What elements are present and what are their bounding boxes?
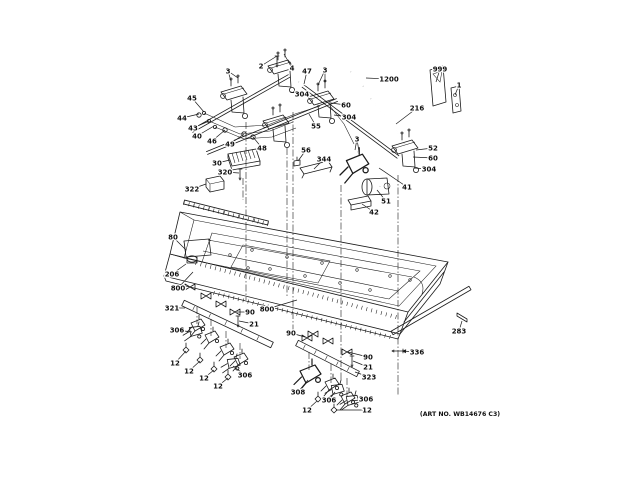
flange-tick [361, 306, 362, 310]
callout-label: 52 [428, 145, 438, 153]
gas-valve [187, 315, 205, 337]
bar-slot [303, 345, 305, 349]
callout-label: 2 [259, 63, 264, 71]
callout-label: 43 [188, 125, 198, 133]
floor-hole [251, 249, 254, 252]
flange-tick [356, 305, 357, 309]
art-number: (ART NO. WB14676 C3) [420, 411, 500, 418]
flange-tick [386, 312, 387, 316]
flange-tick [254, 277, 255, 281]
plate-1 [451, 86, 461, 113]
holder-306 [182, 319, 205, 345]
flange-tick [235, 272, 236, 276]
callout-label: 55 [311, 123, 321, 131]
callout-label: 4 [290, 65, 295, 73]
callout-label: 336 [410, 349, 425, 357]
callout-label: 90 [245, 309, 255, 317]
floor-hole [247, 267, 250, 270]
flange-tick [308, 291, 309, 295]
bar-slot [257, 336, 259, 340]
callout-label: 306 [322, 397, 337, 405]
callout-label: 12 [362, 407, 372, 415]
flange-tick [244, 274, 245, 278]
callout-label: 344 [317, 156, 332, 164]
bar-slot [325, 356, 327, 360]
flange-tick [352, 303, 353, 307]
floor-hole [269, 268, 272, 271]
callout-label: 999 [433, 66, 448, 74]
callout-label: 60 [341, 102, 351, 110]
orifice-12 [225, 370, 231, 380]
clip-800 [185, 284, 195, 290]
callout-label: 306 [170, 327, 185, 335]
flange-tick [313, 293, 314, 297]
floor-hole [304, 275, 307, 278]
callout-label: 44 [177, 115, 187, 123]
callout-label: 306 [359, 396, 374, 404]
flange-tick [342, 301, 343, 305]
bracket-344 [300, 161, 332, 178]
flange-tick [269, 281, 270, 285]
valve-assembly-a [221, 75, 248, 119]
callout-label: 3 [355, 136, 360, 144]
box-right-face [400, 262, 448, 334]
bar-slot [239, 215, 240, 218]
callout-label: 12 [213, 383, 223, 391]
flange-tick [327, 297, 328, 301]
igniter-wire-2 [209, 121, 293, 134]
clip [323, 338, 333, 344]
flange-tick [200, 262, 201, 266]
orifice-12 [331, 403, 337, 413]
flange-tick [366, 307, 367, 311]
callout-label: 21 [249, 321, 259, 329]
flange-tick [395, 315, 396, 319]
clip-800 [216, 301, 226, 307]
flange-tick [239, 273, 240, 277]
flange-tick [381, 311, 382, 315]
flex-hose-216-core [371, 99, 404, 143]
callout-label: 90 [286, 330, 296, 338]
flange-tick [220, 268, 221, 272]
callout-label: 308 [291, 389, 306, 397]
callout-label: 323 [362, 374, 377, 382]
callout-label: 46 [207, 138, 217, 146]
box-floor [202, 233, 420, 299]
callout-label: 49 [225, 141, 235, 149]
box-corner-cutout [414, 277, 423, 294]
diagram-page: 3244734530460443044340464948555634430320… [0, 0, 640, 480]
callout-label: 800 [171, 285, 186, 293]
callout-label: 80 [168, 234, 178, 242]
callout-label: 1 [457, 82, 462, 90]
flange-tick [205, 264, 206, 268]
callout-label: 12 [184, 368, 194, 376]
valve-f [340, 148, 369, 183]
floor-hole [389, 275, 392, 278]
valve-308 [294, 359, 321, 392]
callout-label: 21 [363, 364, 373, 372]
floor-hole [321, 262, 324, 265]
callout-label: 320 [218, 169, 233, 177]
rear-support-rail [184, 200, 269, 225]
callout-label: 45 [187, 95, 197, 103]
callout-label: 321 [165, 305, 180, 313]
bar-slot [254, 218, 255, 221]
flange-tick [376, 310, 377, 314]
floor-hole [229, 254, 232, 257]
callout-label: 12 [170, 360, 180, 368]
flange-tick [230, 270, 231, 274]
flange-tick [210, 265, 211, 269]
wire-terminal [197, 113, 201, 117]
callout-label: 90 [363, 354, 373, 362]
callout-label: 322 [185, 186, 200, 194]
flange-tick [264, 280, 265, 284]
callout-label: 12 [302, 407, 312, 415]
callout-label: 1200 [379, 76, 399, 84]
bar-slot [241, 329, 243, 333]
clip-90 [342, 349, 352, 355]
bar-slot [347, 367, 349, 371]
flange-tick [259, 278, 260, 282]
flange-tick [288, 286, 289, 290]
callout-label: 30 [212, 160, 222, 168]
callout-label: 47 [302, 68, 312, 76]
flange-tick [332, 298, 333, 302]
callout-label: 306 [238, 372, 253, 380]
generated-parts-layer [182, 49, 471, 414]
flange-tick [225, 269, 226, 273]
callout-layer: 3244734530460443044340464948555634430320… [165, 54, 467, 415]
bar-slot [193, 306, 195, 310]
supply-pipe-55 [302, 85, 399, 158]
floor-hole [369, 289, 372, 292]
flange-tick [215, 266, 216, 270]
box-floor-rails [203, 240, 412, 291]
hose-1200-core [351, 72, 363, 86]
lower-manifold-center-323 [296, 340, 360, 376]
orifice-12 [211, 362, 217, 372]
flange-tick [322, 295, 323, 299]
flange-tick [347, 302, 348, 306]
exploded-parts-diagram: 3244734530460443044340464948555634430320… [0, 0, 640, 480]
igniter-wire-4 [330, 106, 354, 144]
callout-label: 40 [192, 133, 202, 141]
callout-label: 56 [301, 147, 311, 155]
bar-slot [209, 314, 211, 318]
clip-800 [201, 293, 211, 299]
orifice-12 [315, 392, 321, 402]
screw-320 [238, 169, 242, 180]
callout-label: 42 [369, 209, 379, 217]
clip-56 [294, 157, 300, 166]
valve-assembly-e [392, 129, 419, 173]
callout-label: 3 [323, 67, 328, 75]
callout-label: 304 [342, 114, 357, 122]
screw-283 [457, 313, 467, 322]
flange-tick [283, 285, 284, 289]
flange-tick [391, 314, 392, 318]
clip [308, 331, 318, 337]
floor-hole [356, 269, 359, 272]
callout-label: 41 [402, 184, 412, 192]
flange-tick [337, 299, 338, 303]
flange-tick [278, 283, 279, 287]
bar-slot [336, 362, 338, 366]
flange-tick [298, 289, 299, 293]
callout-label: 206 [165, 271, 180, 279]
junction-box-322 [206, 176, 224, 192]
callout-label: 60 [428, 155, 438, 163]
callout-label: 12 [199, 375, 209, 383]
callout-label: 800 [260, 306, 275, 314]
valve-assembly-d [263, 104, 290, 148]
box-outer-rim [170, 212, 448, 312]
flange-tick [303, 290, 304, 294]
callout-label: 48 [257, 145, 267, 153]
flange-tick [274, 282, 275, 286]
bar-slot [314, 350, 316, 354]
orifice-12 [197, 353, 203, 363]
bar-slot [225, 321, 227, 325]
regulator-51 [362, 178, 390, 195]
flange-tick [249, 276, 250, 280]
screw-336 [392, 349, 403, 353]
callout-label: 283 [452, 328, 467, 336]
callout-label: 304 [422, 166, 437, 174]
callout-label: 304 [295, 91, 310, 99]
spark-module-30 [228, 149, 260, 170]
callout-label: 216 [410, 105, 425, 113]
flange-tick [371, 308, 372, 312]
flange-tick [317, 294, 318, 298]
gas-valve [216, 339, 234, 361]
callout-label: 51 [381, 198, 391, 206]
callout-label: 3 [226, 68, 231, 76]
